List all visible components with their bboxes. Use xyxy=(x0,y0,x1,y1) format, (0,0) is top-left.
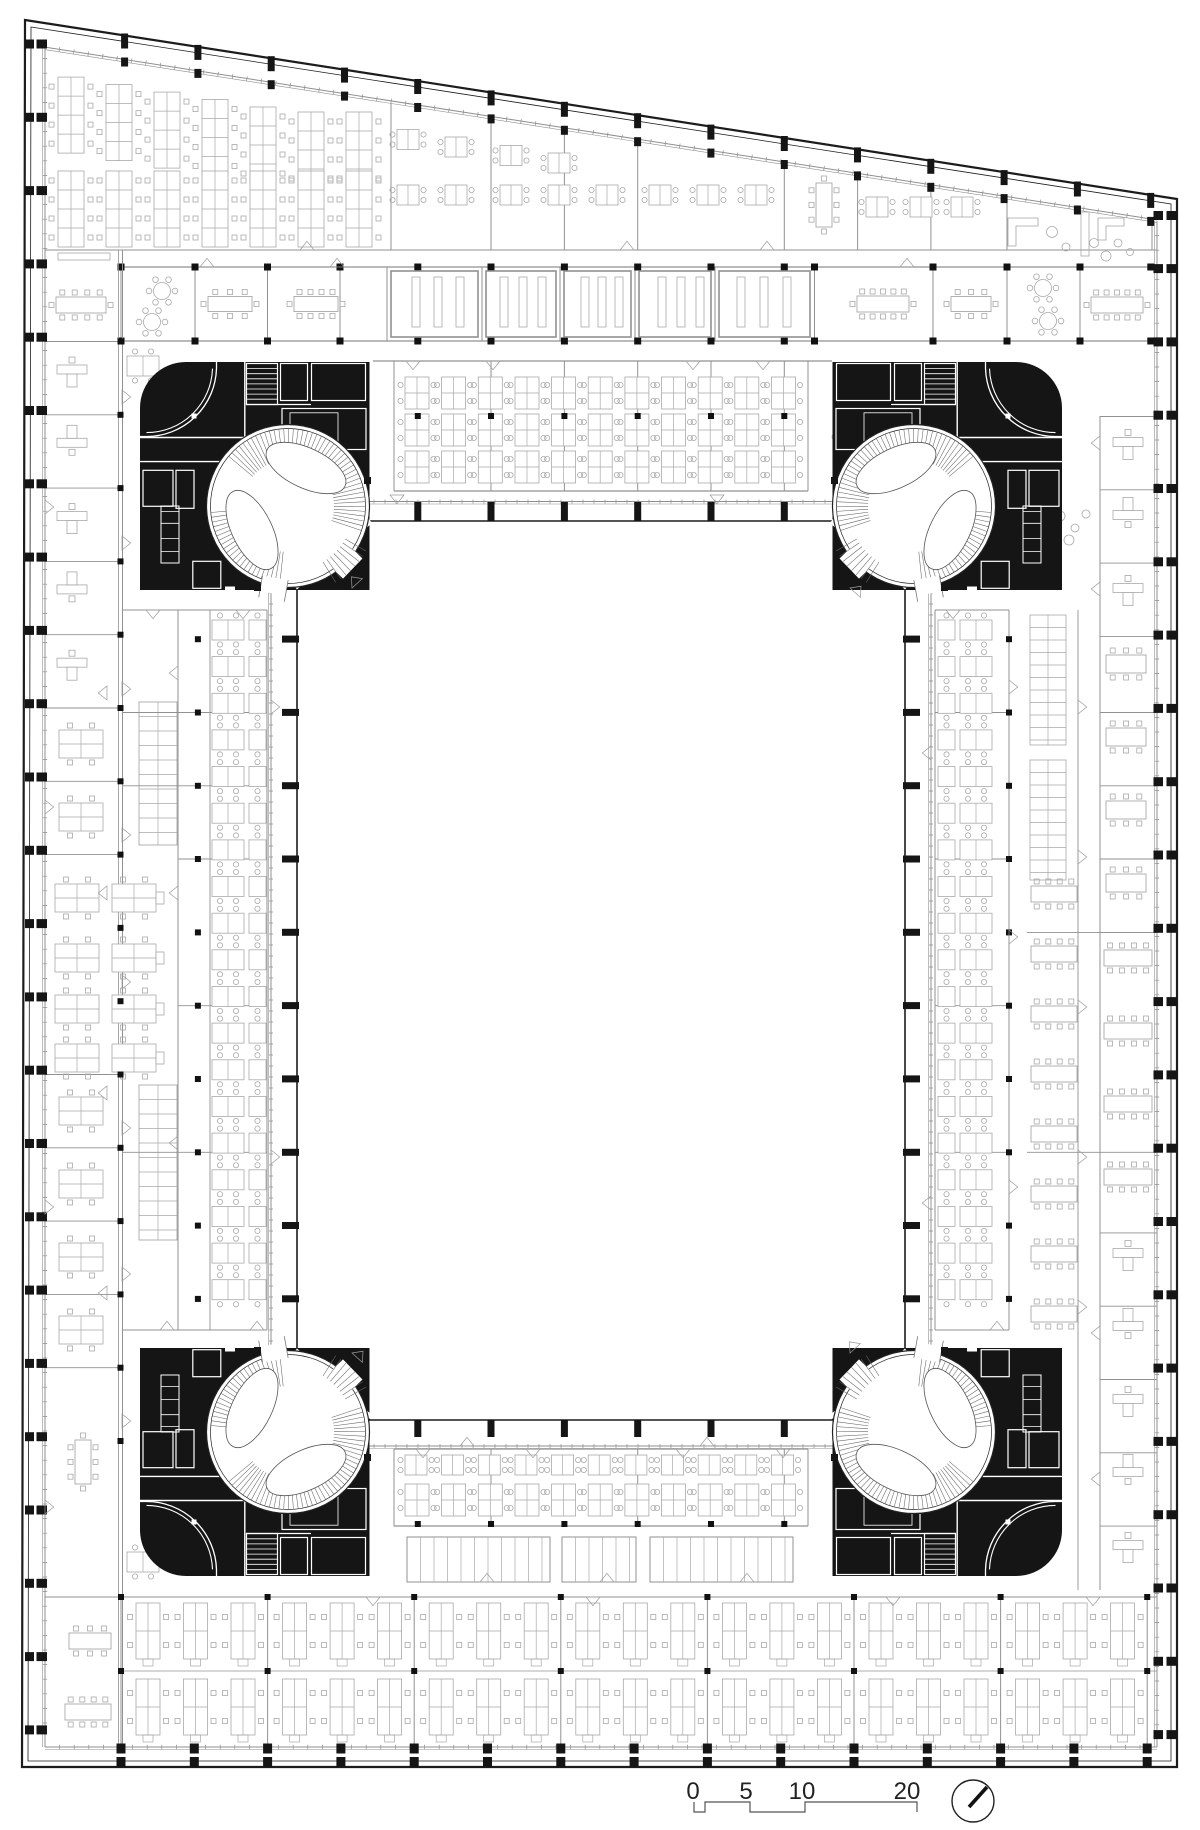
svg-text:5: 5 xyxy=(739,1778,752,1805)
svg-text:0: 0 xyxy=(686,1778,699,1805)
svg-text:10: 10 xyxy=(789,1778,816,1805)
svg-text:20: 20 xyxy=(894,1778,921,1805)
